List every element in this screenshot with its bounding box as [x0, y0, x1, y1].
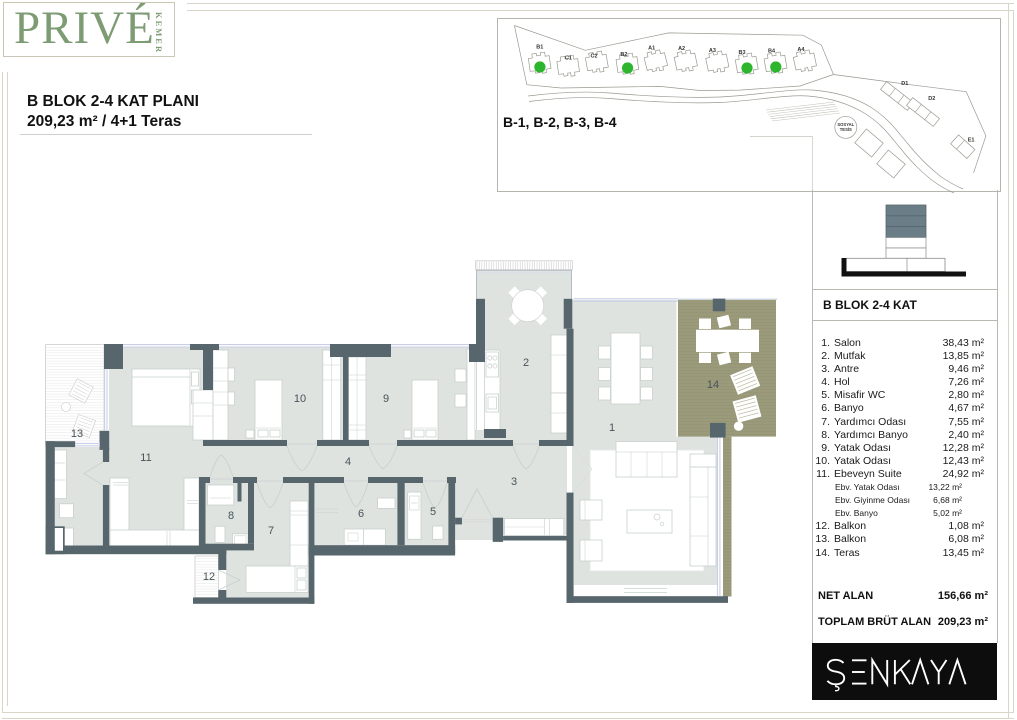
svg-text:TESİS: TESİS [840, 127, 852, 132]
svg-text:1: 1 [609, 422, 615, 434]
svg-text:E1: E1 [968, 138, 975, 144]
svg-text:4: 4 [345, 456, 351, 468]
svg-text:B3: B3 [738, 50, 745, 56]
svg-text:B2: B2 [620, 52, 627, 58]
svg-text:C1: C1 [565, 56, 572, 62]
svg-text:B4: B4 [768, 49, 776, 55]
svg-text:12: 12 [203, 571, 215, 583]
svg-text:A3: A3 [709, 48, 716, 54]
svg-text:D1: D1 [901, 81, 908, 87]
svg-text:B1: B1 [536, 45, 543, 51]
svg-text:A1: A1 [648, 46, 655, 52]
svg-text:3: 3 [511, 476, 517, 488]
svg-text:10: 10 [294, 393, 306, 405]
svg-text:D2: D2 [928, 96, 935, 102]
svg-text:14: 14 [707, 379, 719, 391]
svg-text:9: 9 [383, 393, 389, 405]
svg-text:C2: C2 [590, 54, 597, 60]
svg-text:11: 11 [140, 452, 151, 464]
svg-text:8: 8 [228, 510, 234, 522]
svg-text:2: 2 [523, 357, 529, 369]
svg-text:A4: A4 [797, 47, 805, 53]
svg-text:6: 6 [358, 508, 364, 520]
svg-text:5: 5 [430, 506, 436, 518]
svg-text:7: 7 [268, 525, 274, 537]
svg-text:13: 13 [71, 428, 83, 440]
svg-text:A2: A2 [678, 46, 685, 52]
